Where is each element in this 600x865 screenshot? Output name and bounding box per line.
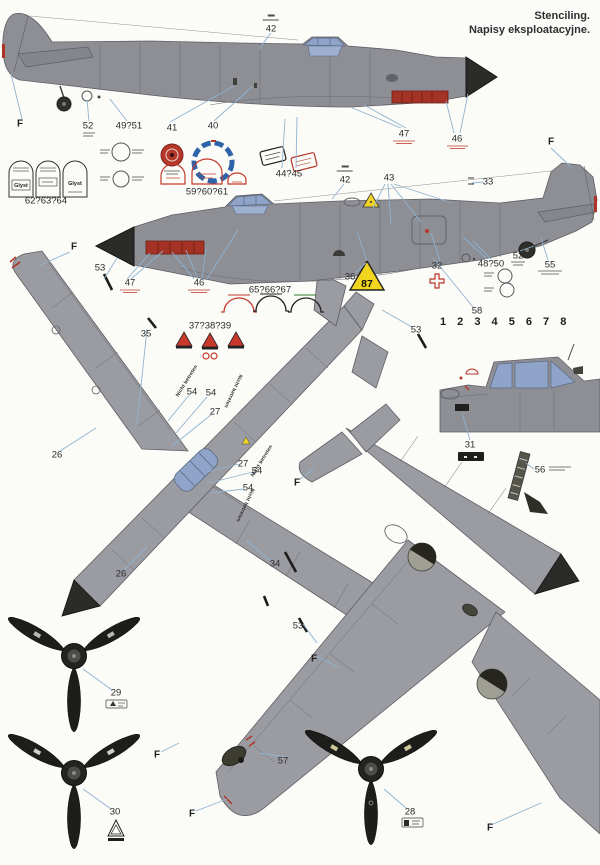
jack-circle-decal	[500, 283, 514, 297]
bottom-view-planform	[216, 404, 600, 834]
prop-plate-decal-29	[106, 700, 127, 708]
aerial-wire	[30, 16, 298, 40]
canopy-stencil-decals	[9, 161, 87, 197]
prop-plate-decal-30	[108, 820, 124, 841]
diagram-art	[0, 0, 600, 865]
tailplane-bottom-sw	[299, 432, 362, 482]
first-aid-cross-decal	[430, 274, 444, 288]
spinner-profile	[96, 227, 134, 266]
red-arch-decal	[466, 369, 478, 374]
wing-access-panel	[92, 386, 100, 394]
exhaust-stack	[392, 91, 448, 103]
stencil-instruction-sheet: Stenciling. Napisy eksploatacyjne. F5249…	[0, 0, 600, 865]
right-wing-bottom	[472, 612, 600, 834]
stencil-plate-red	[291, 152, 318, 171]
boarding-step-strip	[508, 452, 530, 501]
sheet-title: Stenciling. Napisy eksploatacyjne.	[469, 9, 590, 38]
title-pl: Napisy eksploatacyjne.	[469, 23, 590, 37]
semicircle-decals	[221, 294, 324, 312]
fuselage-bottom-view	[346, 428, 561, 594]
propeller-30	[5, 729, 143, 848]
data-plate-decal	[458, 452, 484, 461]
aerial-mast	[568, 344, 574, 360]
jack-circle-decal	[498, 269, 512, 283]
exhaust-stack	[146, 241, 204, 254]
warning-triangle-decals	[176, 332, 244, 359]
jack-point-ring	[82, 91, 92, 101]
spinner-profile	[466, 57, 497, 97]
jack-circle-decal	[113, 171, 129, 187]
rudder-red-mark	[2, 44, 5, 58]
prop-plate-decal-28	[402, 818, 423, 827]
step-shadow	[524, 492, 548, 514]
propeller-29	[5, 612, 143, 731]
left-wing	[13, 251, 188, 451]
side-view-left-profile	[96, 163, 597, 284]
rudder-red-mark	[594, 196, 597, 212]
fuselage-profile	[96, 163, 597, 284]
marker-31-target	[455, 404, 469, 411]
canopy-mid	[515, 361, 548, 388]
side-view-right-profile	[2, 13, 497, 111]
tailplane-right	[352, 336, 388, 388]
fuel-disc-decal	[161, 144, 183, 166]
supercharger-intake	[386, 74, 398, 82]
title-en: Stenciling.	[469, 9, 590, 23]
jack-circle-decal	[112, 143, 130, 161]
aerial-wire	[274, 170, 560, 201]
